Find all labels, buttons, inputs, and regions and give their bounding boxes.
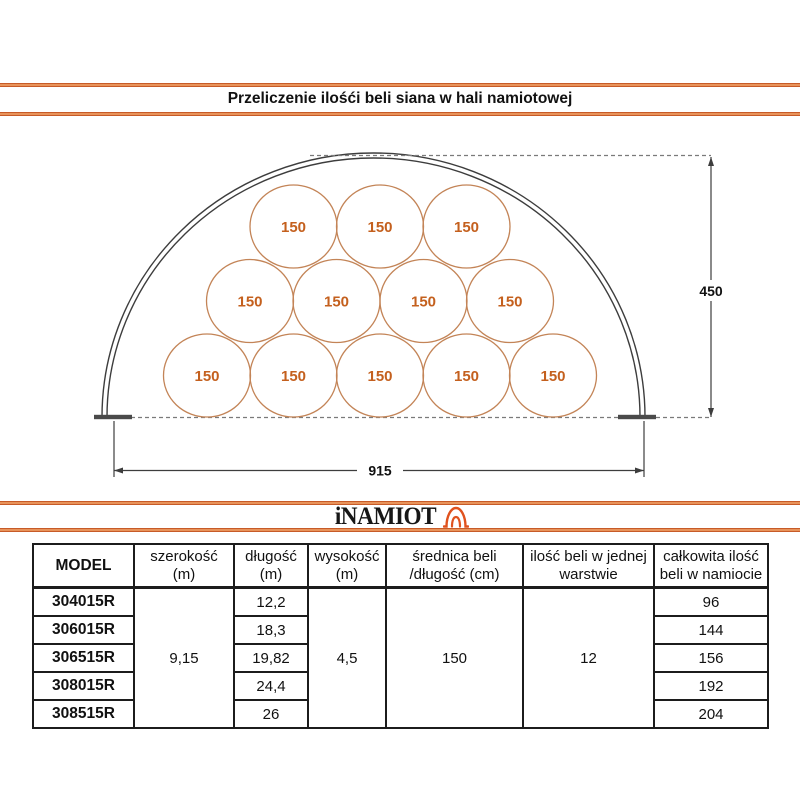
header-line: wysokość [309,548,385,566]
header-row: MODEL szerokość (m) długość (m) wysokość… [33,544,768,588]
bale-label: 150 [454,219,479,236]
base-plate-left [94,415,132,419]
brand-logo-text: iNAMIOT [335,505,436,528]
width-dimension-label: 915 [368,463,392,479]
col-header-calkowita: całkowita ilość beli w namiocie [654,544,768,588]
ilosc-warstwa-cell: 12 [523,588,654,729]
srednica-cell: 150 [386,588,523,729]
header-line: beli w namiocie [655,566,767,584]
header-line: (m) [135,566,233,584]
model-cell: 306015R [33,616,134,644]
calkowita-cell: 96 [654,588,768,617]
col-header-szerokosc: szerokość (m) [134,544,234,588]
calkowita-cell: 192 [654,672,768,700]
page-title: Przeliczenie ilośći beli siana w hali na… [0,87,800,112]
model-cell: 304015R [33,588,134,617]
dlugosc-cell: 18,3 [234,616,308,644]
table-row: 304015R 9,15 12,2 4,5 150 12 96 [33,588,768,617]
bale-label: 150 [194,368,219,385]
dlugosc-cell: 12,2 [234,588,308,617]
header-line: ilość beli w jednej [524,548,653,566]
calkowita-cell: 156 [654,644,768,672]
header-line: warstwie [524,566,653,584]
header-line: (m) [309,566,385,584]
calkowita-cell: 204 [654,700,768,728]
header-line: MODEL [34,557,133,575]
bale-label: 150 [497,294,522,311]
model-cell: 308015R [33,672,134,700]
col-header-ilosc-warstwa: ilość beli w jednej warstwie [523,544,654,588]
height-dimension-label: 450 [699,283,723,299]
bale-label: 150 [367,368,392,385]
bale-label: 150 [540,368,565,385]
wysokosc-cell: 4,5 [308,588,386,729]
bale-label: 150 [454,368,479,385]
bale-label: 150 [281,368,306,385]
arrow-right-icon [635,468,644,474]
brand-logo: iNAMIOT [0,505,800,528]
arrow-up-icon [708,157,714,166]
header-line: średnica beli [387,548,522,566]
dlugosc-cell: 19,82 [234,644,308,672]
col-header-srednica: średnica beli /długość (cm) [386,544,523,588]
logo-band: iNAMIOT [0,501,800,532]
orange-rule-bottom [0,112,800,116]
col-header-dlugosc: długość (m) [234,544,308,588]
tent-icon [443,505,469,528]
bale-label: 150 [324,294,349,311]
header-line: całkowita ilość [655,548,767,566]
szerokosc-cell: 9,15 [134,588,234,729]
bale-label: 150 [281,219,306,236]
bale-label: 150 [237,294,262,311]
model-cell: 308515R [33,700,134,728]
arrow-down-icon [708,408,714,417]
tent-diagram: 150 150 150 150 150 150 150 150 150 150 … [0,130,800,500]
dlugosc-cell: 26 [234,700,308,728]
header-line: /długość (cm) [387,566,522,584]
base-plate-right [618,415,656,419]
header-line: (m) [235,566,307,584]
bale-label: 150 [411,294,436,311]
model-cell: 306515R [33,644,134,672]
dlugosc-cell: 24,4 [234,672,308,700]
col-header-wysokosc: wysokość (m) [308,544,386,588]
spec-table: MODEL szerokość (m) długość (m) wysokość… [32,543,769,729]
title-band: Przeliczenie ilośći beli siana w hali na… [0,83,800,116]
calkowita-cell: 144 [654,616,768,644]
header-line: długość [235,548,307,566]
arrow-left-icon [114,468,123,474]
col-header-model: MODEL [33,544,134,588]
header-line: szerokość [135,548,233,566]
bale-label: 150 [367,219,392,236]
